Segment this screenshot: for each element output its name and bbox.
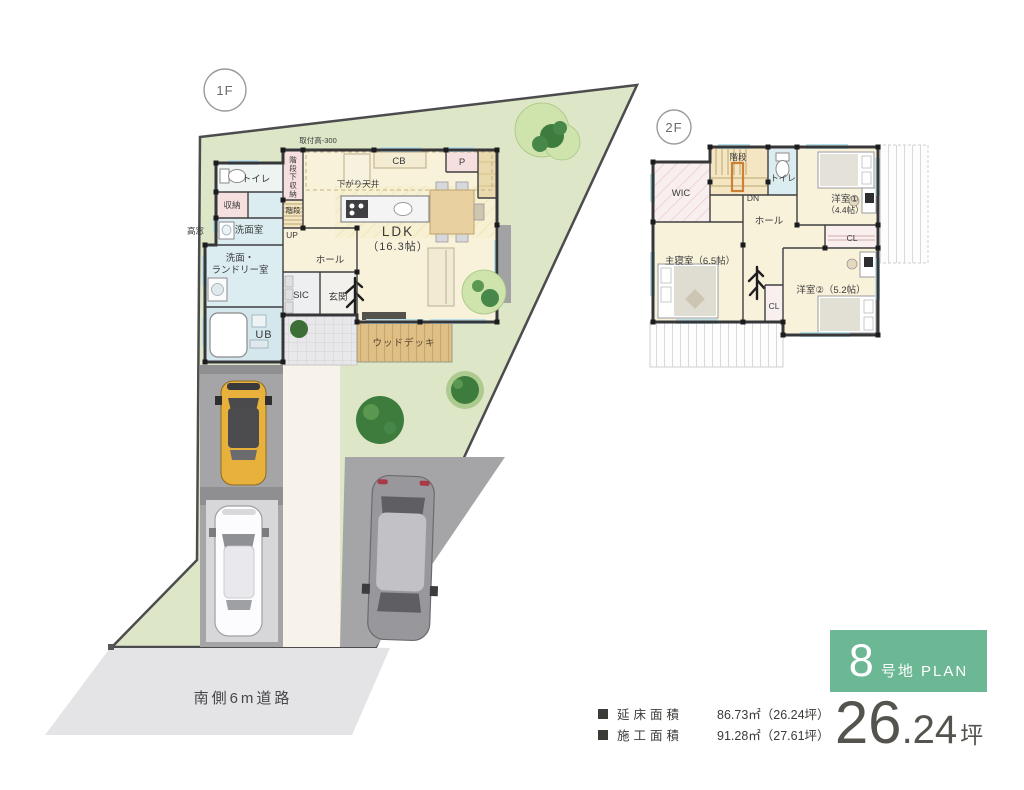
sofa	[428, 248, 454, 306]
tsubo-fraction: .24	[902, 708, 958, 753]
tree-icon	[446, 371, 484, 409]
label-closet-2: CL	[769, 301, 780, 311]
car-white	[209, 506, 269, 636]
label-ldk: LDK	[382, 224, 414, 239]
bed-bedroom1	[818, 152, 874, 188]
total-tsubo: 26 .24 坪	[822, 686, 996, 760]
tree-icon	[462, 270, 506, 314]
square-bullet-icon	[598, 709, 608, 719]
area-info: 延床面積 86.73㎡（26.24坪） 施工面積 91.28㎡（27.61坪）	[598, 703, 833, 745]
roof-hatch-bottom	[650, 322, 783, 367]
floor1-badge-label: 1F	[216, 83, 233, 98]
tv-board	[362, 312, 406, 320]
construction-area-label: 施工面積	[617, 725, 713, 744]
label-stairs-1f: 階段	[286, 205, 301, 215]
label-sic: SIC	[293, 290, 309, 301]
label-closet-1: CL	[847, 233, 858, 243]
plan-number: 8	[849, 630, 874, 692]
construction-area-value: 91.28㎡（27.61坪）	[717, 725, 830, 744]
label-ldk-size: （16.3帖）	[367, 240, 428, 253]
plan-badge: 8 号地 PLAN	[830, 630, 987, 692]
label-dn: DN	[747, 193, 759, 203]
label-stairs-2f: 階段	[729, 152, 747, 162]
total-floor-area-row: 延床面積 86.73㎡（26.24坪）	[598, 703, 833, 724]
label-lowered-ceiling: 下がり天井	[337, 179, 380, 189]
roof-hatch-right	[878, 145, 928, 263]
washing-machine	[208, 278, 227, 301]
road: 南側6m道路	[45, 644, 390, 735]
label-ub: UB	[255, 329, 272, 341]
floor2-badge: 2F	[657, 110, 691, 144]
label-up: UP	[286, 230, 298, 240]
bed-bedroom2	[818, 296, 876, 333]
square-bullet-icon	[598, 730, 608, 740]
tsubo-integer: 26	[835, 686, 902, 760]
floor2-plan: 階段 トイレ WIC DN ホール 洋室① （4.4帖） CL 主寝室（6.5帖…	[650, 144, 928, 367]
wood-deck: ウッドデッキ	[357, 323, 452, 362]
tsubo-unit: 坪	[960, 716, 983, 750]
label-entrance: 玄関	[328, 291, 347, 303]
label-bedroom2: 洋室②（5.2帖）	[796, 284, 865, 296]
label-storage: 収納	[223, 200, 240, 210]
washbasin	[219, 222, 234, 239]
wood-deck-label: ウッドデッキ	[372, 337, 435, 349]
road-label: 南側6m道路	[194, 690, 293, 707]
label-toilet-1f: トイレ	[242, 174, 271, 185]
construction-area-row: 施工面積 91.28㎡（27.61坪）	[598, 724, 833, 745]
kitchen-island	[341, 196, 429, 222]
floor-plan-page: 南側6m道路 ウッドデッキ	[0, 0, 1024, 790]
label-pantry: P	[459, 157, 465, 168]
label-laundry-2: ランドリー室	[211, 264, 268, 276]
bush-icon	[290, 320, 308, 338]
approach-path	[283, 365, 340, 647]
label-washroom: 洗面室	[235, 224, 264, 236]
total-floor-area-value: 86.73㎡（26.24坪）	[717, 704, 830, 723]
label-under-stair-storage: 階段下収納	[288, 155, 297, 199]
bed-master	[658, 264, 718, 318]
car-gray	[360, 475, 442, 642]
sic-shelf	[285, 276, 293, 313]
label-hall-1f: ホール	[316, 255, 345, 266]
label-toilet-2f: トイレ	[770, 173, 796, 183]
tree-icon	[356, 396, 404, 444]
car-yellow	[215, 381, 272, 485]
label-master-bedroom: 主寝室（6.5帖）	[665, 255, 735, 267]
floor1-badge: 1F	[204, 69, 246, 111]
label-mount-height: 取付高-300	[299, 135, 337, 145]
label-cb: CB	[392, 156, 405, 167]
total-floor-area-label: 延床面積	[617, 704, 713, 723]
label-high-window: 高窓	[187, 226, 205, 236]
label-bedroom1: 洋室①	[831, 193, 859, 205]
label-bedroom1-size: （4.4帖）	[826, 205, 863, 215]
floor2-badge-label: 2F	[665, 120, 682, 135]
plan-suffix: 号地 PLAN	[881, 660, 968, 681]
label-hall-2f: ホール	[755, 216, 784, 227]
label-laundry-1: 洗面・	[226, 252, 255, 264]
label-wic: WIC	[672, 188, 691, 199]
boundary-marker	[108, 644, 114, 650]
